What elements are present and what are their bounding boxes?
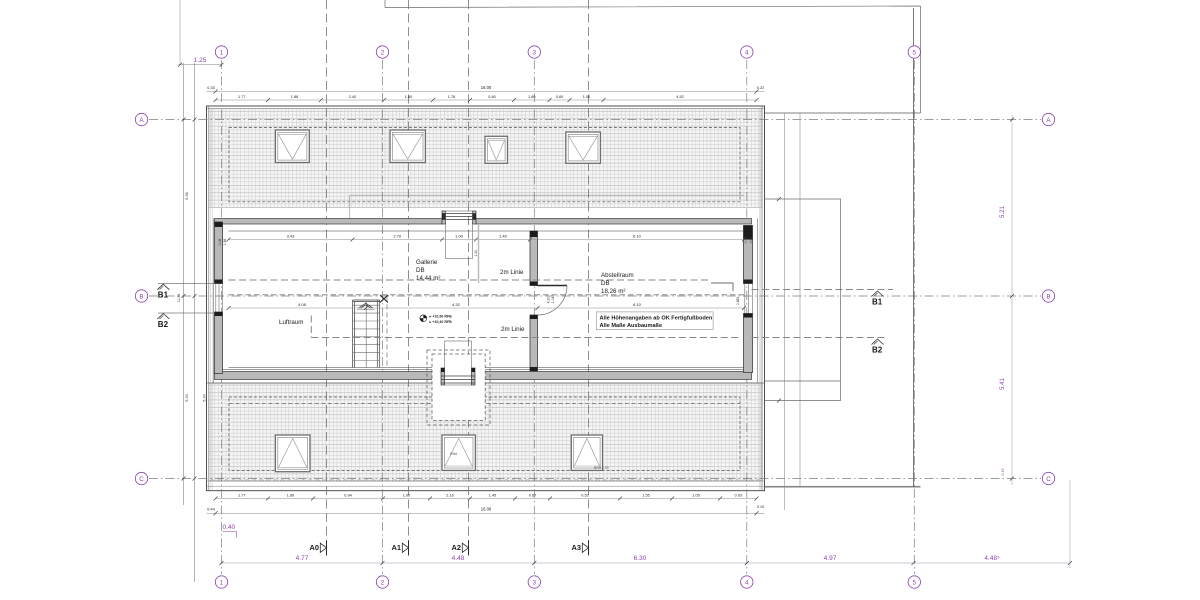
svg-text:0.60: 0.60 bbox=[556, 95, 563, 99]
svg-text:B1: B1 bbox=[872, 298, 883, 307]
svg-text:B: B bbox=[139, 293, 143, 300]
svg-text:4.48: 4.48 bbox=[452, 555, 465, 562]
svg-text:1.80: 1.80 bbox=[405, 95, 412, 99]
svg-text:4: 4 bbox=[745, 579, 749, 586]
svg-text:3: 3 bbox=[533, 49, 537, 56]
svg-text:Abstellraum: Abstellraum bbox=[601, 272, 634, 279]
svg-text:4.48⁵: 4.48⁵ bbox=[984, 555, 1000, 562]
svg-text:5.34: 5.34 bbox=[185, 394, 189, 401]
svg-text:B2: B2 bbox=[158, 320, 169, 329]
svg-text:2m Linie: 2m Linie bbox=[500, 269, 524, 276]
svg-text:B1: B1 bbox=[158, 291, 169, 300]
svg-text:5.34: 5.34 bbox=[203, 394, 207, 401]
svg-text:0.19: 0.19 bbox=[757, 505, 764, 509]
svg-text:0.40: 0.40 bbox=[223, 524, 236, 531]
svg-text:A0: A0 bbox=[310, 543, 319, 552]
svg-text:0.44: 0.44 bbox=[207, 507, 216, 512]
svg-text:5.41: 5.41 bbox=[1000, 378, 1006, 390]
svg-text:0.67: 0.67 bbox=[529, 494, 536, 498]
svg-text:18,26 m²: 18,26 m² bbox=[601, 288, 625, 295]
svg-text:Luftraum: Luftraum bbox=[279, 319, 303, 326]
svg-text:Alle Höhenangaben ab OK Fertig: Alle Höhenangaben ab OK Fertigfußboden bbox=[600, 315, 713, 321]
svg-text:5: 5 bbox=[913, 579, 917, 586]
svg-text:4.77: 4.77 bbox=[296, 555, 309, 562]
svg-text:6.10: 6.10 bbox=[633, 234, 642, 239]
svg-text:16.00: 16.00 bbox=[481, 85, 492, 90]
svg-text:0.94: 0.94 bbox=[344, 494, 351, 498]
svg-text:1: 1 bbox=[220, 579, 224, 586]
svg-text:3: 3 bbox=[533, 579, 537, 586]
svg-text:16.06: 16.06 bbox=[481, 507, 492, 512]
svg-text:0.80: 0.80 bbox=[488, 95, 495, 99]
svg-text:5.36: 5.36 bbox=[185, 192, 189, 199]
svg-text:1.30: 1.30 bbox=[474, 250, 478, 257]
svg-text:4.32: 4.32 bbox=[452, 302, 461, 307]
svg-text:▸ +10,56 RFB: ▸ +10,56 RFB bbox=[429, 314, 453, 318]
svg-text:1.25: 1.25 bbox=[194, 57, 207, 64]
svg-text:C: C bbox=[139, 476, 144, 483]
svg-text:1.80: 1.80 bbox=[528, 95, 535, 99]
svg-text:Gallerie: Gallerie bbox=[416, 259, 438, 266]
svg-text:14,44 m²: 14,44 m² bbox=[416, 275, 440, 282]
svg-text:0.36: 0.36 bbox=[744, 237, 748, 244]
svg-text:1.00: 1.00 bbox=[455, 234, 464, 239]
svg-text:4.08: 4.08 bbox=[298, 302, 307, 307]
svg-text:1: 1 bbox=[220, 49, 224, 56]
svg-text:0.52: 0.52 bbox=[581, 494, 588, 498]
svg-text:5.21: 5.21 bbox=[1000, 206, 1006, 218]
svg-text:Alle Maße Ausbaumaße: Alle Maße Ausbaumaße bbox=[600, 323, 663, 329]
svg-text:0.22: 0.22 bbox=[757, 86, 764, 90]
svg-text:1.98: 1.98 bbox=[223, 239, 227, 246]
svg-text:3.43: 3.43 bbox=[287, 234, 296, 239]
svg-text:5: 5 bbox=[913, 49, 917, 56]
svg-text:4.97: 4.97 bbox=[824, 555, 837, 562]
svg-text:1.89: 1.89 bbox=[287, 494, 294, 498]
svg-text:1.45: 1.45 bbox=[489, 494, 496, 498]
svg-text:0.19: 0.19 bbox=[1001, 469, 1005, 476]
svg-text:DB: DB bbox=[601, 280, 610, 287]
svg-text:0.33: 0.33 bbox=[207, 86, 214, 90]
svg-text:2.16: 2.16 bbox=[446, 494, 453, 498]
svg-text:2.70: 2.70 bbox=[393, 234, 402, 239]
svg-text:2.40: 2.40 bbox=[349, 95, 356, 99]
svg-text:1.77: 1.77 bbox=[238, 494, 245, 498]
svg-text:2: 2 bbox=[381, 49, 385, 56]
svg-text:1.76: 1.76 bbox=[448, 95, 455, 99]
svg-text:1.00: 1.00 bbox=[583, 95, 590, 99]
svg-text:C: C bbox=[1046, 476, 1051, 483]
svg-text:2m Linie: 2m Linie bbox=[501, 326, 525, 333]
svg-text:▸ +10,40 RFB: ▸ +10,40 RFB bbox=[429, 320, 453, 324]
svg-text:RWA: RWA bbox=[450, 452, 458, 456]
svg-text:4: 4 bbox=[745, 49, 749, 56]
svg-text:1.40: 1.40 bbox=[499, 234, 508, 239]
svg-text:6.30: 6.30 bbox=[634, 555, 647, 562]
svg-text:1.05: 1.05 bbox=[692, 494, 699, 498]
svg-text:B: B bbox=[1046, 293, 1050, 300]
svg-text:BRH 0,90: BRH 0,90 bbox=[594, 466, 609, 470]
svg-text:A2: A2 bbox=[452, 543, 461, 552]
svg-text:11.98: 11.98 bbox=[177, 294, 181, 302]
svg-text:A3: A3 bbox=[572, 543, 581, 552]
svg-text:DB: DB bbox=[416, 267, 425, 274]
svg-text:2: 2 bbox=[381, 579, 385, 586]
svg-text:1.00: 1.00 bbox=[403, 494, 410, 498]
svg-text:0.52: 0.52 bbox=[749, 237, 753, 244]
svg-text:6.10: 6.10 bbox=[633, 302, 642, 307]
svg-text:1.77: 1.77 bbox=[238, 95, 245, 99]
svg-text:0.08: 0.08 bbox=[218, 239, 222, 246]
svg-text:1.55: 1.55 bbox=[642, 494, 649, 498]
svg-text:1.88: 1.88 bbox=[291, 95, 298, 99]
svg-text:B2: B2 bbox=[872, 346, 883, 355]
svg-text:0.93: 0.93 bbox=[735, 494, 742, 498]
svg-text:4.52: 4.52 bbox=[676, 95, 683, 99]
svg-text:A1: A1 bbox=[392, 543, 401, 552]
svg-text:0.885: 0.885 bbox=[736, 297, 740, 306]
svg-text:1.14: 1.14 bbox=[551, 297, 555, 304]
svg-text:4.20: 4.20 bbox=[547, 297, 551, 304]
